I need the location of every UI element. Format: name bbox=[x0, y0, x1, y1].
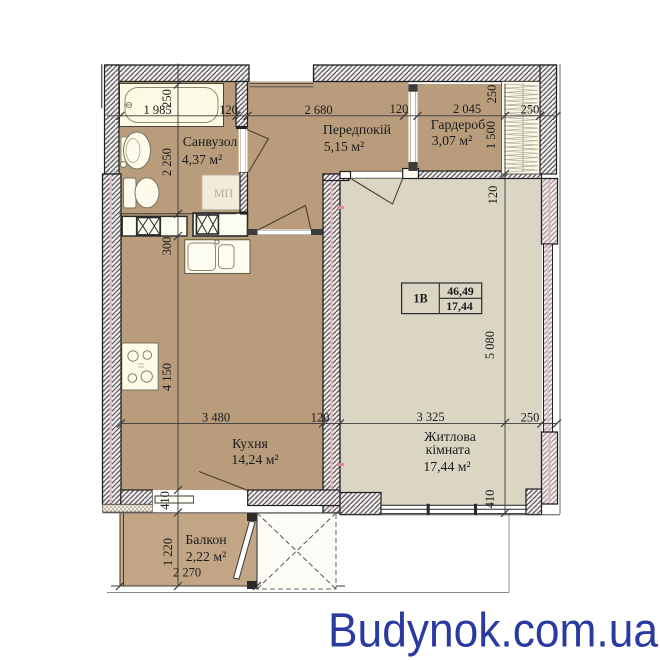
svg-text:410: 410 bbox=[483, 490, 497, 509]
svg-text:5,15 м²: 5,15 м² bbox=[324, 139, 364, 154]
svg-text:4,37 м²: 4,37 м² bbox=[182, 152, 222, 167]
svg-text:2 045: 2 045 bbox=[453, 102, 481, 116]
svg-text:46,49: 46,49 bbox=[447, 284, 474, 298]
svg-text:17,44: 17,44 bbox=[446, 299, 473, 313]
svg-text:120: 120 bbox=[486, 186, 500, 205]
svg-text:3,07 м²: 3,07 м² bbox=[432, 133, 472, 148]
svg-text:120: 120 bbox=[311, 410, 330, 424]
svg-text:Budynok.com.ua: Budynok.com.ua bbox=[328, 604, 658, 658]
svg-text:17,44 м²: 17,44 м² bbox=[423, 459, 470, 474]
svg-text:250: 250 bbox=[485, 85, 499, 104]
svg-text:300: 300 bbox=[160, 237, 174, 256]
svg-text:120: 120 bbox=[390, 102, 409, 116]
svg-text:250: 250 bbox=[521, 410, 540, 424]
svg-text:5 080: 5 080 bbox=[483, 331, 497, 359]
svg-text:250: 250 bbox=[160, 89, 174, 108]
svg-text:3 480: 3 480 bbox=[202, 410, 230, 424]
svg-text:Передпокій: Передпокій bbox=[323, 122, 392, 137]
svg-text:2 680: 2 680 bbox=[305, 103, 333, 117]
svg-text:1 500: 1 500 bbox=[484, 121, 498, 149]
svg-text:250: 250 bbox=[521, 103, 540, 117]
svg-text:14,24 м²: 14,24 м² bbox=[231, 452, 278, 467]
svg-text:Балкон: Балкон bbox=[185, 532, 227, 547]
svg-text:4 150: 4 150 bbox=[160, 363, 174, 391]
svg-text:1В: 1В bbox=[413, 292, 427, 306]
svg-text:2 250: 2 250 bbox=[160, 148, 174, 176]
svg-text:Санвузол: Санвузол bbox=[183, 134, 238, 149]
svg-text:Гардероб: Гардероб bbox=[431, 117, 485, 132]
svg-text:2 270: 2 270 bbox=[173, 566, 201, 580]
svg-text:3 325: 3 325 bbox=[416, 410, 444, 424]
svg-text:1 220: 1 220 bbox=[161, 538, 175, 566]
svg-text:кімната: кімната bbox=[426, 442, 471, 457]
svg-text:120: 120 bbox=[219, 103, 238, 117]
svg-text:Кухня: Кухня bbox=[232, 436, 268, 451]
svg-text:МП: МП bbox=[214, 186, 234, 200]
svg-text:410: 410 bbox=[158, 491, 172, 510]
svg-text:2,22 м²: 2,22 м² bbox=[186, 549, 226, 564]
